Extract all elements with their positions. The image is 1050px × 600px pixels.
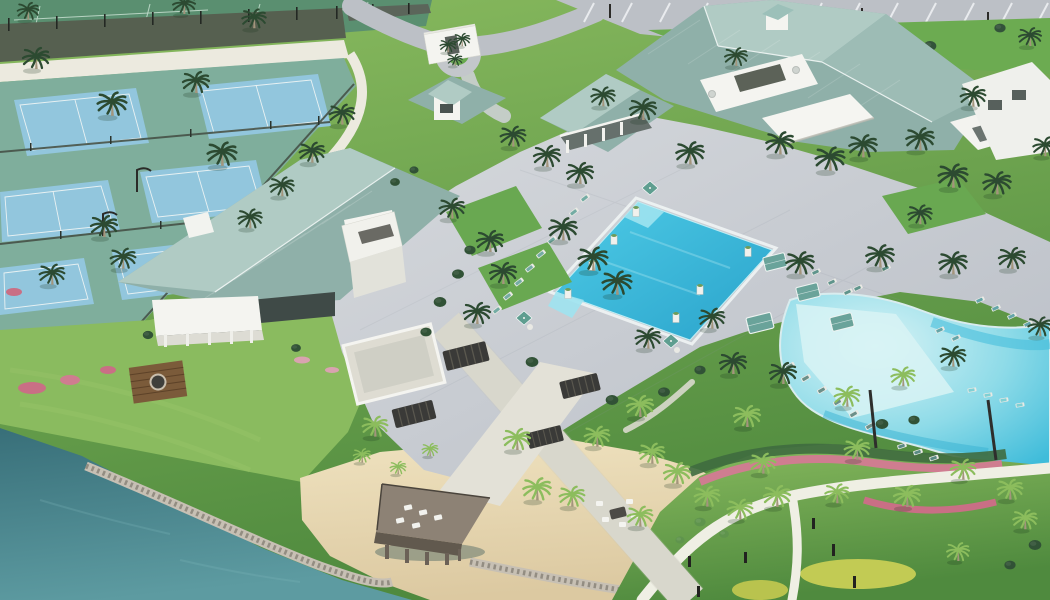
dock bbox=[374, 484, 490, 565]
round-window bbox=[709, 91, 716, 98]
rendering-canvas bbox=[0, 0, 1050, 600]
table bbox=[527, 324, 533, 330]
tower-louver bbox=[440, 104, 453, 113]
entry-porch bbox=[152, 296, 262, 336]
aerial-rendering bbox=[0, 0, 1050, 600]
privacy-wall bbox=[129, 360, 187, 403]
table bbox=[674, 347, 680, 353]
logo-ring bbox=[150, 374, 167, 391]
round-window bbox=[793, 67, 800, 74]
